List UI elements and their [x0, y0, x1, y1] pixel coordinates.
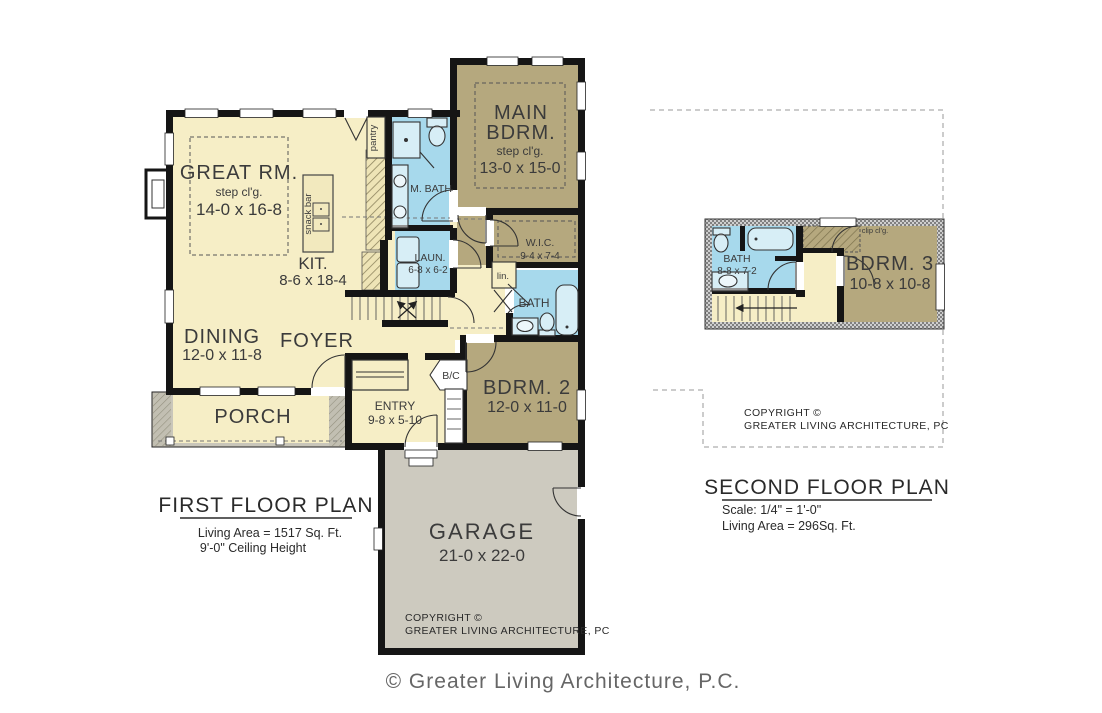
chase — [445, 389, 463, 443]
bath-label: BATH — [518, 296, 549, 310]
first-floor-ceiling-height: 9'-0" Ceiling Height — [200, 541, 307, 555]
garage-steps — [405, 450, 437, 466]
laundry-label: LAUN. — [415, 252, 446, 264]
great-room-size: 14-0 x 16-8 — [196, 200, 282, 219]
main-bedroom-label-1: MAIN — [494, 102, 548, 124]
second-floor-copyright: COPYRIGHT © GREATER LIVING ARCHITECTURE,… — [744, 407, 949, 432]
linen-label: lin. — [497, 271, 509, 282]
entry-closet — [352, 360, 408, 390]
floor-plan-sheet: GREAT RM. step cl'g. 14-0 x 16-8 KIT. 8-… — [0, 0, 1102, 713]
copyright-line-1: COPYRIGHT © — [405, 612, 482, 624]
bedroom3-label: BDRM. 3 — [846, 253, 934, 275]
wic-size: 9-4 x 7-4 — [520, 251, 560, 262]
first-floor-title: FIRST FLOOR PLAN — [158, 494, 373, 517]
second-floor-title: SECOND FLOOR PLAN — [704, 476, 950, 499]
laundry-size: 6-8 x 6-2 — [408, 265, 448, 276]
broom-closet-label: B/C — [442, 370, 460, 382]
main-bedroom-ceiling: step cl'g. — [497, 144, 544, 158]
great-room-ceiling: step cl'g. — [216, 185, 263, 199]
snack-bar-label: snack bar — [303, 193, 314, 234]
wic-label: W.I.C. — [526, 237, 555, 249]
main-bedroom-label-2: BDRM. — [486, 122, 555, 144]
floor-plan-drawing: GREAT RM. step cl'g. 14-0 x 16-8 KIT. 8-… — [0, 0, 1102, 713]
entry-label: ENTRY — [375, 399, 415, 413]
kitchen-label: KIT. — [298, 254, 327, 273]
bedroom3-size: 10-8 x 10-8 — [850, 276, 931, 293]
second-bath-size: 8-8 x 7-2 — [717, 266, 757, 277]
kitchen-size: 8-6 x 18-4 — [279, 272, 347, 289]
copyright-line-2: GREATER LIVING ARCHITECTURE, PC — [405, 625, 610, 637]
foyer-label: FOYER — [280, 330, 354, 352]
bedroom2-label: BDRM. 2 — [483, 377, 571, 399]
footer-copyright: © Greater Living Architecture, P.C. — [386, 670, 741, 693]
copyright-line-1: COPYRIGHT © — [744, 407, 821, 419]
first-floor-title-block: FIRST FLOOR PLAN Living Area = 1517 Sq. … — [158, 494, 373, 555]
dining-size: 12-0 x 11-8 — [182, 347, 262, 364]
main-bedroom-size: 13-0 x 15-0 — [480, 160, 561, 177]
clip-ceiling-label: clip cl'g. — [862, 226, 888, 235]
second-floor-living-area: Living Area = 296Sq. Ft. — [722, 519, 856, 533]
first-floor-living-area: Living Area = 1517 Sq. Ft. — [198, 526, 342, 540]
master-bath-label: M. BATH — [410, 183, 452, 195]
second-bath-label: BATH — [723, 253, 750, 265]
garage-size: 21-0 x 22-0 — [439, 546, 525, 565]
entry-size: 9-8 x 5-10 — [368, 413, 422, 427]
great-room-label: GREAT RM. — [180, 162, 298, 184]
porch-label: PORCH — [214, 406, 291, 428]
garage-label: GARAGE — [429, 519, 535, 544]
pantry-label: pantry — [368, 125, 379, 152]
bedroom2-size: 12-0 x 11-0 — [487, 399, 567, 416]
copyright-line-2: GREATER LIVING ARCHITECTURE, PC — [744, 420, 949, 432]
second-floor-title-block: SECOND FLOOR PLAN Scale: 1/4" = 1'-0" Li… — [704, 476, 950, 533]
second-floor-scale: Scale: 1/4" = 1'-0" — [722, 503, 821, 517]
dining-label: DINING — [184, 326, 260, 348]
